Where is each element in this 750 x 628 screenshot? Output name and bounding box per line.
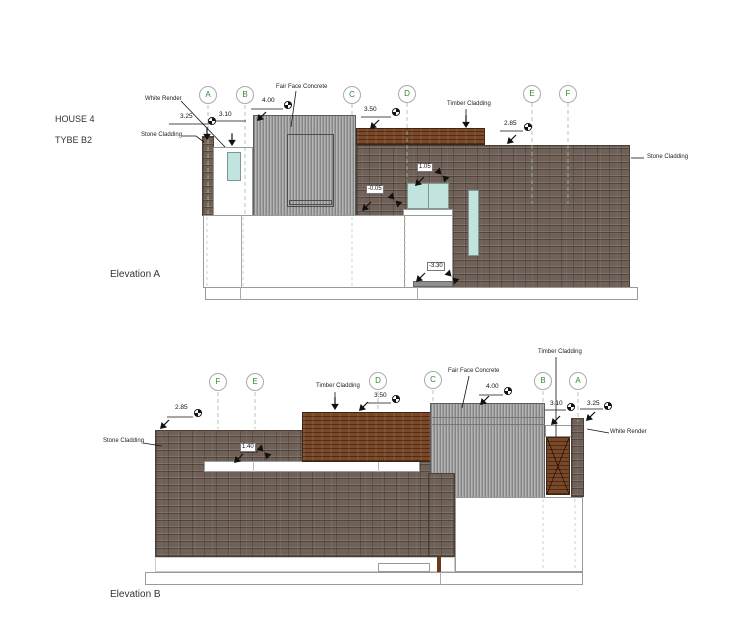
dim-310-b: 3.10 xyxy=(550,400,563,407)
survey-marker-icon xyxy=(567,403,574,410)
stone-corner-patch-b xyxy=(428,473,455,557)
arrow-icon xyxy=(329,397,342,410)
lower-level-a-divider xyxy=(241,215,242,288)
window-outline-b xyxy=(378,563,430,572)
arrow-icon xyxy=(226,133,239,146)
arrow-icon xyxy=(507,135,516,144)
project-type-label: TYBE B2 xyxy=(55,135,92,145)
grid-bubble-f: F xyxy=(559,85,577,103)
survey-marker-icon xyxy=(524,123,531,130)
grid-bubble-e-b: E xyxy=(246,373,264,391)
survey-marker-icon xyxy=(392,108,399,115)
grid-bubble-c: C xyxy=(343,86,361,104)
door-sill-a xyxy=(403,209,453,216)
grid-bubble-e: E xyxy=(523,85,541,103)
slot-window-a xyxy=(468,190,479,256)
concrete-band-line-1 xyxy=(430,417,545,418)
timber-door-b xyxy=(546,437,570,495)
dim-350-b: 3.50 xyxy=(374,392,387,399)
arrow-icon xyxy=(586,412,595,421)
elevation-b-title: Elevation B xyxy=(110,589,161,600)
dim-325-a: 3.25 xyxy=(180,113,193,120)
label-fair-face-b: Fair Face Concrete xyxy=(448,368,499,375)
dim-325-b: 3.25 xyxy=(587,400,600,407)
base-plinth-b-line xyxy=(440,572,441,585)
arrow-icon xyxy=(551,416,560,425)
arrow-icon xyxy=(460,115,473,128)
dim-285-b: 2.85 xyxy=(175,404,188,411)
label-fair-face-a: Fair Face Concrete xyxy=(276,84,327,91)
arrow-icon xyxy=(160,420,169,429)
level-m005-a: -0.05 xyxy=(366,185,384,194)
label-timber-cladding-b-left: Timber Cladding xyxy=(316,383,360,390)
level-140-b: 1.40 xyxy=(240,443,256,452)
label-timber-cladding-b-right: Timber Cladding xyxy=(538,349,582,356)
stone-column-b xyxy=(571,418,584,497)
railing-tick-2 xyxy=(378,461,379,472)
label-white-render-a: White Render xyxy=(145,96,182,103)
timber-band-a xyxy=(356,128,485,145)
level-105-a: 1.05 xyxy=(417,163,433,172)
survey-marker-icon xyxy=(208,117,215,124)
railing-band-b xyxy=(204,461,420,472)
elevation-a-title: Elevation A xyxy=(110,269,160,280)
grid-bubble-b: B xyxy=(236,86,254,104)
lower-level-a xyxy=(203,215,413,288)
grid-bubble-f-b: F xyxy=(209,373,227,391)
base-plinth-a xyxy=(205,287,638,300)
level-m330-a: -3.30 xyxy=(427,262,445,271)
glass-door-a xyxy=(407,183,449,209)
lower-level-b-right xyxy=(455,497,583,572)
label-timber-cladding-a: Timber Cladding xyxy=(447,101,491,108)
survey-marker-icon xyxy=(284,101,291,108)
grid-bubble-b-b: B xyxy=(534,372,552,390)
timber-post-b xyxy=(437,557,441,572)
label-stone-cladding-a-right: Stone Cladding xyxy=(647,154,688,161)
small-window-a xyxy=(227,152,241,181)
base-plinth-b xyxy=(145,572,583,585)
base-plinth-a-line2 xyxy=(417,287,418,300)
door-outline-a xyxy=(287,134,334,207)
drawing-sheet: A B C D E F F E D C B A HOUSE 4 TYBE B2 … xyxy=(0,0,750,628)
dim-350-a: 3.50 xyxy=(364,106,377,113)
arrow-icon xyxy=(359,402,368,411)
grid-bubble-d: D xyxy=(398,85,416,103)
base-plinth-a-line1 xyxy=(240,287,241,300)
door-vent-band-a xyxy=(289,200,332,205)
grid-bubble-c-b: C xyxy=(424,371,442,389)
grid-bubble-a: A xyxy=(199,86,217,104)
timber-band-b xyxy=(302,412,438,462)
label-white-render-b: White Render xyxy=(610,429,647,436)
dim-400-b: 4.00 xyxy=(486,383,499,390)
railing-tick-1 xyxy=(253,461,254,472)
door-recess-a xyxy=(404,215,453,288)
survey-marker-icon xyxy=(194,409,201,416)
project-house-label: HOUSE 4 xyxy=(55,114,95,124)
dim-400-a: 4.00 xyxy=(262,97,275,104)
dim-310-a: 3.10 xyxy=(219,111,232,118)
label-stone-cladding-b: Stone Cladding xyxy=(103,438,144,445)
concrete-band-line-2 xyxy=(430,424,545,425)
grid-bubble-a-b: A xyxy=(569,372,587,390)
survey-marker-icon xyxy=(392,395,399,402)
dim-285-a: 2.85 xyxy=(504,120,517,127)
survey-marker-icon xyxy=(604,402,611,409)
label-stone-cladding-a-left: Stone Cladding xyxy=(141,132,182,139)
survey-marker-icon xyxy=(504,387,511,394)
grid-bubble-d-b: D xyxy=(369,372,387,390)
